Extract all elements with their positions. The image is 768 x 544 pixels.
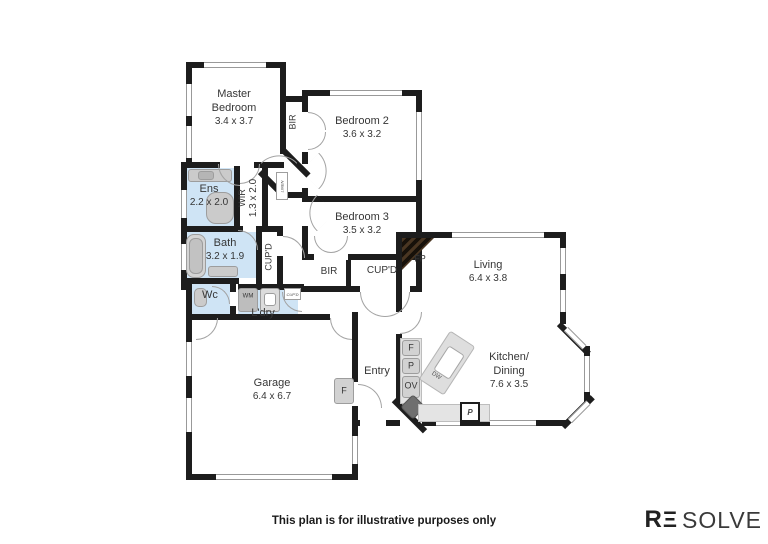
logo-solve: SOLVE [682,507,762,534]
room-label-wc: Wc [202,289,218,303]
wall [302,152,308,164]
window [204,62,266,68]
floor-plan: CUP'D P DW LINEN Master Bedroom 3.4 x 3.… [0,0,768,544]
door-arc-garage-internal [330,318,352,340]
room-name: Entry [364,365,390,379]
cupd-bath-label: CUP'D [263,243,274,270]
pantry-label: P [408,360,414,371]
room-dims: 3.2 x 1.9 [206,251,244,264]
room-dims: 6.4 x 6.7 [253,391,291,404]
room-label-wir: WIR 1.3 x 2.0 [237,179,261,217]
room-dims: 1.3 x 2.0 [248,179,261,217]
room-name: Garage [253,377,291,391]
window [330,90,402,96]
wall [560,232,566,248]
room-dims: 3.4 x 3.7 [201,116,267,129]
room-name: Wc [202,289,218,303]
logo-r: R [644,506,661,534]
room-name: Master Bedroom [201,88,267,116]
door-arc-front-entry [358,384,382,408]
room-name: Ens [190,183,228,197]
linen-cupboard: LINEN [276,172,288,200]
wall [352,312,358,382]
door-arc-hall-cupd-a [360,292,385,317]
room-name: WIR [237,179,248,217]
freezer-label: F [341,385,347,396]
room-label-garage: Garage 6.4 x 6.7 [253,377,291,403]
room-name: Bath [206,237,244,251]
window [186,84,192,116]
bathtub-inner [189,238,203,274]
door-arc-living [400,312,422,334]
linen-label: LINEN [280,180,285,192]
room-name: Dining [489,365,529,379]
wall [277,226,283,236]
room-name: Living [469,259,507,273]
wall [536,420,568,426]
washing-machine-label: WM [243,293,254,301]
room-label-ensuite: Ens 2.2 x 2.0 [190,183,228,209]
bir-bed2-label: BIR [287,114,298,129]
room-label-bath: Bath 3.2 x 1.9 [206,237,244,263]
wall [256,226,262,288]
bir-hall-label: BIR [321,266,338,279]
room-name: L'dry [251,307,275,321]
logo-e-bars: Ξ [663,507,677,533]
room-label-bedroom2: Bedroom 2 3.6 x 3.2 [335,115,389,141]
room-label-bedroom3: Bedroom 3 3.5 x 3.2 [335,211,389,237]
window [568,400,591,423]
window [352,436,358,464]
room-label-laundry: L'dry [251,307,275,321]
resolve-logo: RΞSOLVE [650,503,762,537]
pantry-bench-box: P [460,402,480,422]
bath-vanity [208,266,238,277]
wall [280,62,286,154]
wall [396,232,432,238]
room-dims: 7.6 x 3.5 [489,379,529,392]
room-dims: 2.2 x 2.0 [190,197,228,210]
oven-label: OV [404,380,417,391]
door-arc-bir3-a [314,236,331,253]
window [584,356,590,392]
door-arc-bir2-a [308,112,326,130]
garage-door [216,474,332,480]
door-arc-bir3-b [331,236,348,253]
window [181,190,187,218]
window [564,327,587,350]
laundry-tub-basin [264,293,276,306]
window [560,248,566,274]
window [490,420,536,426]
room-name: Kitchen/ [489,351,529,365]
wall [346,260,351,286]
room-label-master: Master Bedroom 3.4 x 3.7 [201,88,267,128]
room-label-living: Living 6.4 x 3.8 [469,259,507,285]
window [560,290,566,312]
window [186,398,192,432]
room-dims: 3.5 x 3.2 [335,225,389,238]
wall [302,286,360,292]
room-name: Bedroom 2 [335,115,389,129]
window [452,232,544,238]
door-arc-bir2-b [308,132,326,150]
wall [230,284,236,292]
ensuite-basin [198,171,214,180]
wall [230,306,236,316]
room-dims: 6.4 x 3.8 [469,273,507,286]
window [416,112,422,180]
fridge-label: F [408,342,414,353]
fireplace-label: FP [414,253,426,264]
wall [186,312,192,480]
room-dims: 3.6 x 3.2 [335,129,389,142]
wall [181,226,243,232]
wall [302,90,308,112]
room-label-kitchen: Kitchen/ Dining 7.6 x 3.5 [489,351,529,391]
room-name: Bedroom 3 [335,211,389,225]
pantry-bench-label: P [467,408,472,417]
window [186,126,192,158]
wall [560,274,566,290]
cupd-hall-label: CUP'D [367,265,397,278]
wall [386,420,400,426]
window [186,342,192,376]
wall [352,420,360,426]
room-label-entry: Entry [364,365,390,379]
door-arc-garage-rear [196,318,218,340]
kitchen-island: DW [419,331,476,396]
